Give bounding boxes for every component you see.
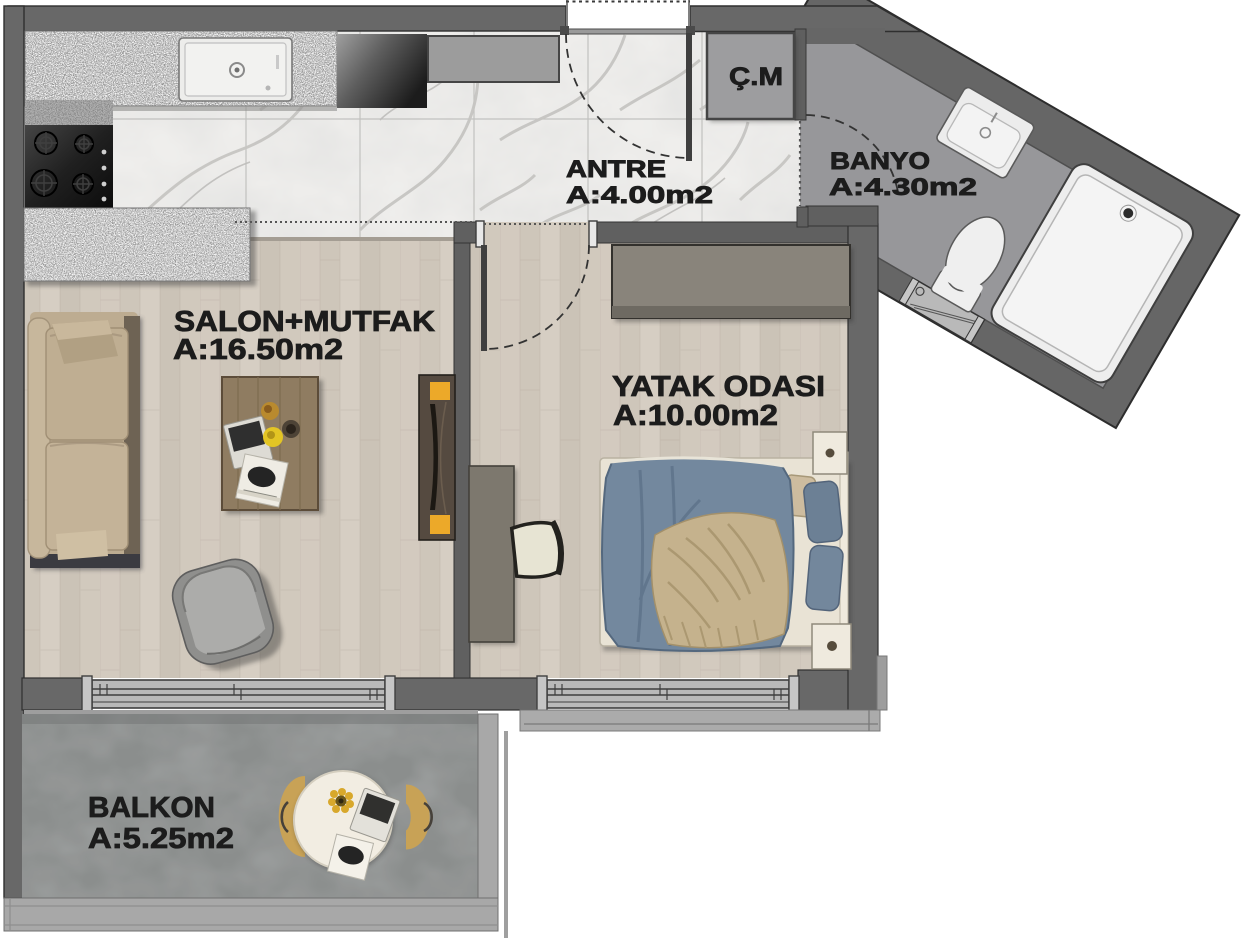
svg-text:A:16.50m2: A:16.50m2 <box>173 334 343 366</box>
svg-text:A:4.30m2: A:4.30m2 <box>829 174 977 201</box>
svg-text:A:4.00m2: A:4.00m2 <box>566 182 713 209</box>
svg-text:A:5.25m2: A:5.25m2 <box>88 823 234 855</box>
svg-text:A:10.00m2: A:10.00m2 <box>613 400 778 432</box>
svg-text:YATAK ODASI: YATAK ODASI <box>612 371 825 403</box>
svg-text:BALKON: BALKON <box>88 792 215 824</box>
svg-text:ANTRE: ANTRE <box>566 156 666 183</box>
svg-text:BANYO: BANYO <box>830 148 930 175</box>
svg-text:Ç.M: Ç.M <box>729 63 783 91</box>
